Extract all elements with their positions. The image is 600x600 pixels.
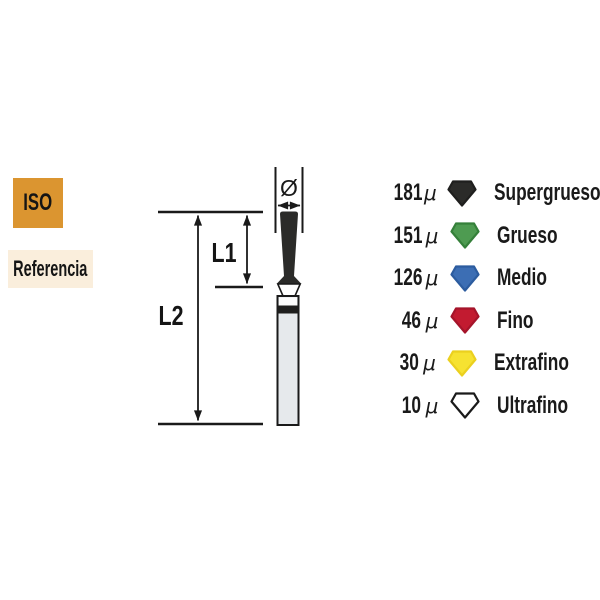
- diamond-icon: [450, 307, 480, 334]
- diamond-icon: [450, 392, 480, 419]
- l2-label: L2: [159, 300, 184, 331]
- legend-row-extrafino: 30 μ Extrafino: [383, 342, 598, 385]
- micron-symbol: μ: [424, 266, 440, 290]
- legend-row-medio: 126 μ Medio: [383, 257, 598, 300]
- bur-shank-white-band: [279, 298, 297, 306]
- legend-row-grueso: 151 μ Grueso: [383, 215, 598, 258]
- grit-label: Medio: [497, 264, 547, 292]
- bur-shank-black-band: [278, 306, 299, 314]
- diameter-symbol: Ø: [280, 175, 298, 201]
- grit-label: Grueso: [497, 222, 558, 250]
- micron-symbol: μ: [424, 394, 440, 418]
- grit-size-value: 30: [393, 349, 419, 377]
- grit-size-value: 126: [394, 264, 421, 292]
- grit-size-value: 151: [394, 222, 421, 250]
- diamond-icon: [447, 350, 477, 377]
- grit-size-value: 46: [394, 307, 421, 335]
- diamond-icon: [450, 222, 480, 249]
- legend-row-supergrueso: 181 μ Supergrueso: [383, 172, 598, 215]
- micron-symbol: μ: [424, 181, 437, 205]
- micron-symbol: μ: [424, 224, 440, 248]
- bur-head-shape: [277, 212, 301, 284]
- micron-symbol: μ: [424, 309, 440, 333]
- grit-size-value: 10: [394, 392, 421, 420]
- diamond-icon: [447, 180, 477, 207]
- grit-label: Fino: [497, 307, 533, 335]
- legend-row-ultrafino: 10 μ Ultrafino: [383, 385, 598, 428]
- grit-legend: 181 μ Supergrueso 151 μ Grueso 126 μ Med…: [383, 172, 598, 427]
- micron-symbol: μ: [422, 351, 437, 375]
- bur-neck-shape: [278, 284, 300, 296]
- legend-row-fino: 46 μ Fino: [383, 300, 598, 343]
- grit-label: Ultrafino: [497, 392, 568, 420]
- bur-grit-diagram-page: ISO Referencia Ø L1: [0, 0, 600, 600]
- grit-size-value: 181: [394, 179, 421, 207]
- diamond-icon: [450, 265, 480, 292]
- l1-label: L1: [212, 237, 237, 268]
- grit-label: Extrafino: [494, 349, 569, 377]
- grit-label: Supergrueso: [494, 179, 600, 207]
- bur-shank-shape: [278, 296, 299, 425]
